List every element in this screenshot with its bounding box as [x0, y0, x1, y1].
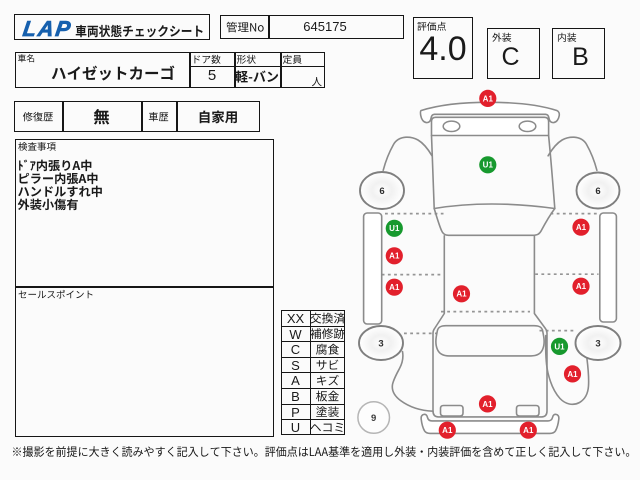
- svg-text:U1: U1: [483, 161, 494, 170]
- svg-text:U1: U1: [554, 342, 565, 351]
- svg-text:A1: A1: [576, 282, 587, 291]
- svg-text:A1: A1: [483, 94, 494, 103]
- svg-text:6: 6: [379, 186, 384, 197]
- svg-text:A1: A1: [523, 426, 534, 435]
- svg-text:A1: A1: [576, 223, 587, 232]
- svg-text:A1: A1: [482, 400, 493, 409]
- svg-text:3: 3: [378, 338, 383, 349]
- svg-text:9: 9: [371, 413, 376, 424]
- svg-text:6: 6: [595, 186, 600, 197]
- svg-text:A1: A1: [389, 283, 400, 292]
- svg-text:U1: U1: [389, 224, 400, 233]
- svg-text:A1: A1: [456, 290, 467, 299]
- svg-text:A1: A1: [389, 252, 400, 261]
- svg-text:A1: A1: [567, 370, 578, 379]
- svg-text:A1: A1: [442, 426, 453, 435]
- svg-text:3: 3: [595, 338, 600, 349]
